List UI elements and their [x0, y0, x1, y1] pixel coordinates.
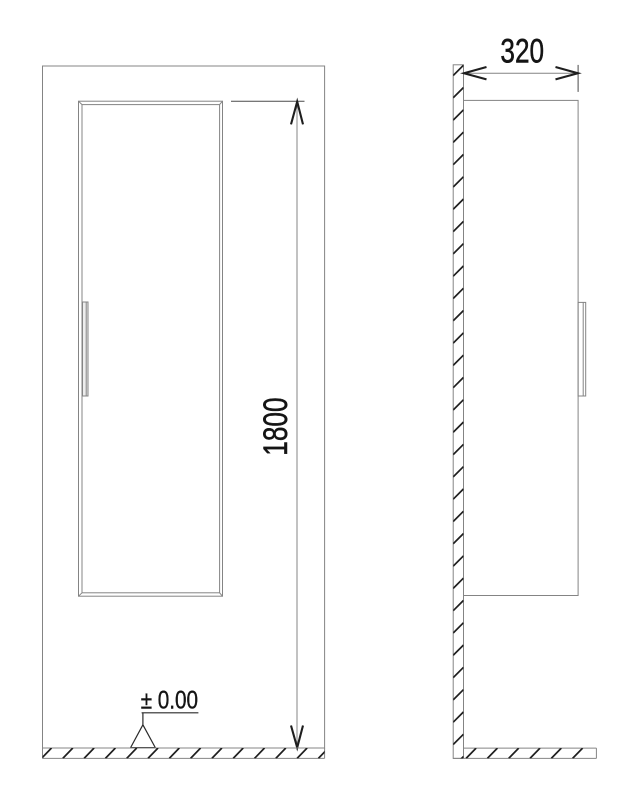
svg-text:320: 320 [500, 33, 544, 70]
svg-text:1800: 1800 [258, 397, 295, 455]
svg-text:± 0.00: ± 0.00 [141, 685, 198, 713]
